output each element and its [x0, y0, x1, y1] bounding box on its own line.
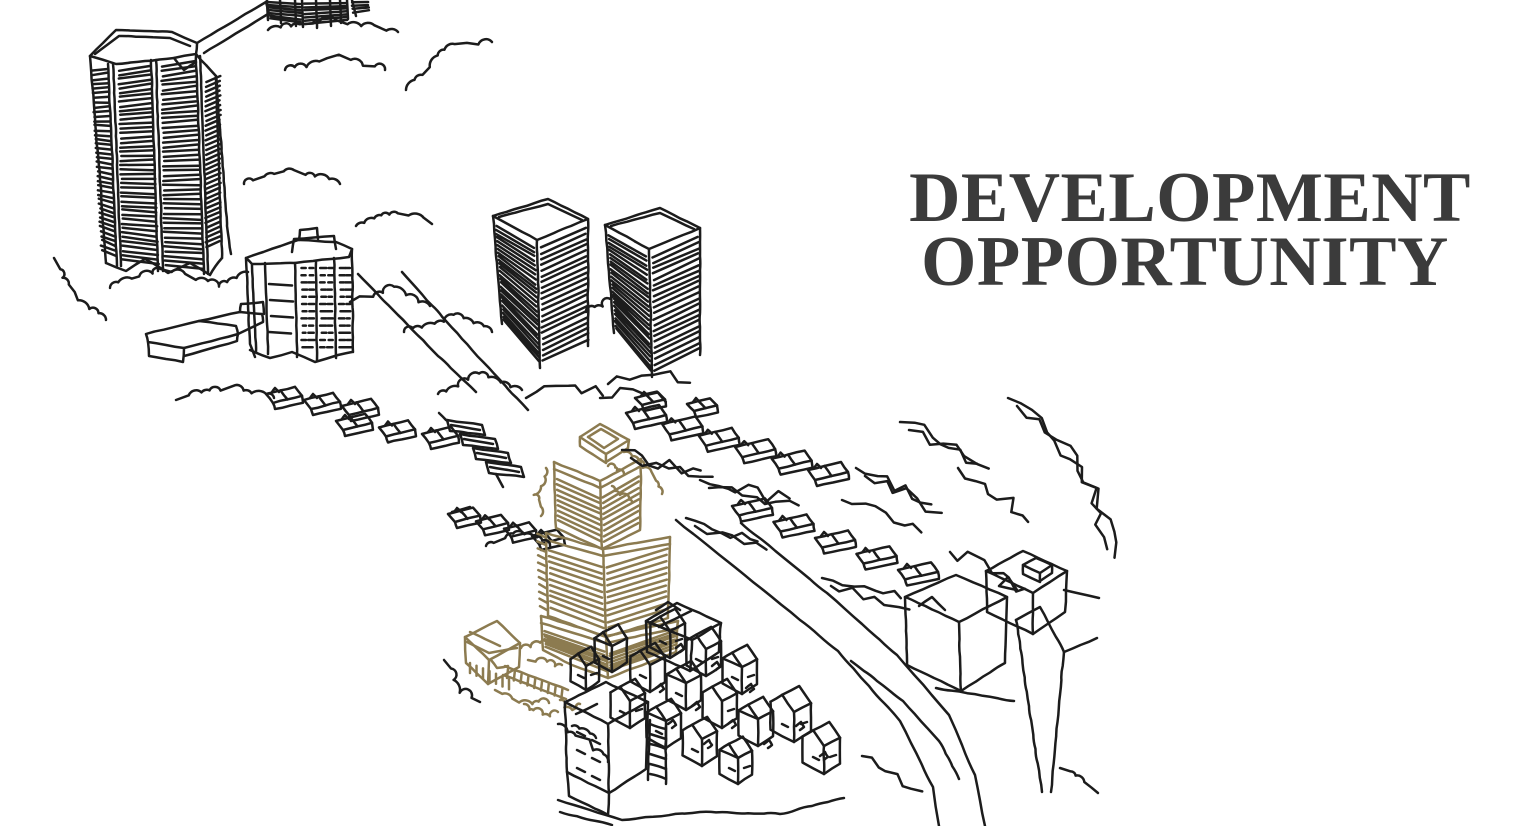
svg-text:OPPORTUNITY: OPPORTUNITY: [921, 223, 1449, 301]
